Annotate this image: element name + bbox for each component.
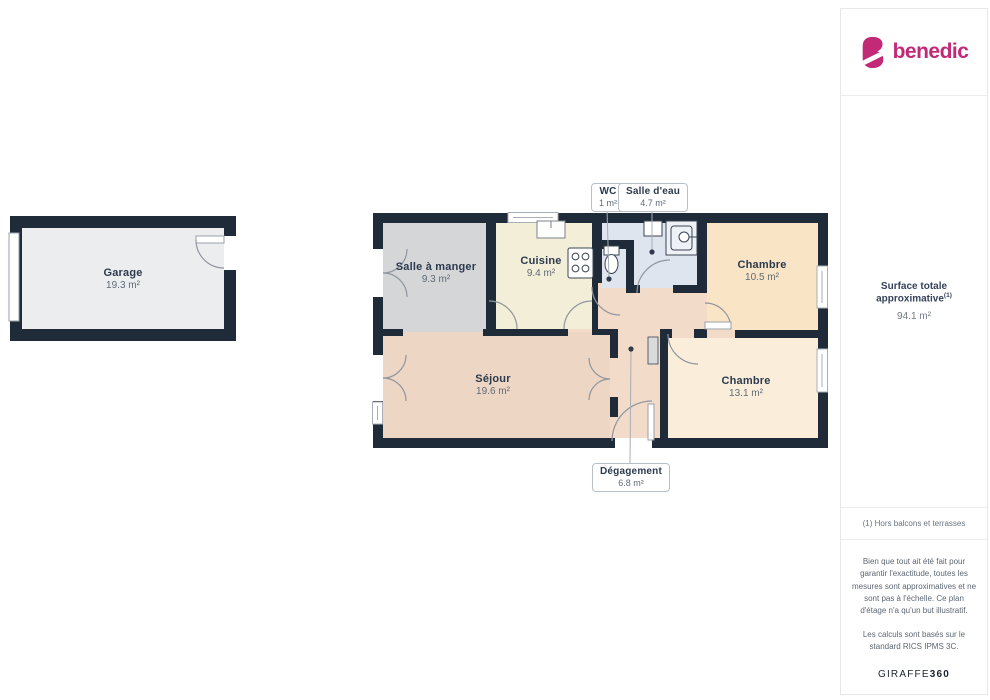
room-area: 1 m² (599, 198, 617, 208)
surface-total-section: Surface totale approximative(1) 94.1 m² (841, 96, 987, 507)
toilet-icon (604, 246, 619, 274)
room-name: Dégagement (600, 466, 662, 477)
giraffe-360: 360 (930, 669, 950, 680)
surface-title-text: Surface totale approximative (876, 281, 947, 304)
garage-door (9, 233, 19, 321)
giraffe360-logo: GIRAFFE360 (850, 667, 978, 683)
floorplan-page: Garage 19.3 m² Salle à manger 9.3 m² Cui… (0, 0, 990, 700)
room-salle-a-manger (383, 222, 486, 332)
room-area: 6.8 m² (600, 478, 662, 488)
brand-name: benedic (893, 40, 969, 64)
disclaimer-text-1: Bien que tout ait été fait pour garantir… (850, 556, 978, 618)
washer-icon (644, 221, 662, 236)
callout-degagement: Dégagement 6.8 m² (592, 463, 670, 492)
legal-disclaimer: Bien que tout ait été fait pour garantir… (841, 539, 987, 694)
room-area: 4.7 m² (626, 198, 680, 208)
info-sidebar: benedic Surface totale approximative(1) … (840, 8, 988, 695)
room-chambre-2 (668, 338, 818, 438)
sink-counter-icon (537, 221, 565, 238)
surface-total-value: 94.1 m² (897, 311, 931, 322)
room-chambre-1 (707, 222, 818, 330)
footnote: (1) Hors balcons et terrasses (841, 507, 987, 539)
room-name: WC (599, 186, 617, 197)
door-leaf (196, 236, 224, 243)
room-name: Salle d'eau (626, 186, 680, 197)
benedic-logo-icon (860, 36, 886, 69)
footnote-marker: (1) (944, 292, 952, 299)
stove-icon (568, 248, 593, 278)
brand-logo: benedic (841, 9, 987, 96)
room-garage (9, 216, 236, 341)
disclaimer-text-2: Les calculs sont basés sur le standard R… (850, 629, 978, 654)
callout-salle-eau: Salle d'eau 4.7 m² (618, 183, 688, 212)
closet-door-leaf (648, 337, 658, 364)
surface-total-title: Surface totale approximative(1) (845, 281, 983, 304)
room-sejour (383, 332, 610, 438)
giraffe-text: GIRAFFE (878, 669, 930, 680)
